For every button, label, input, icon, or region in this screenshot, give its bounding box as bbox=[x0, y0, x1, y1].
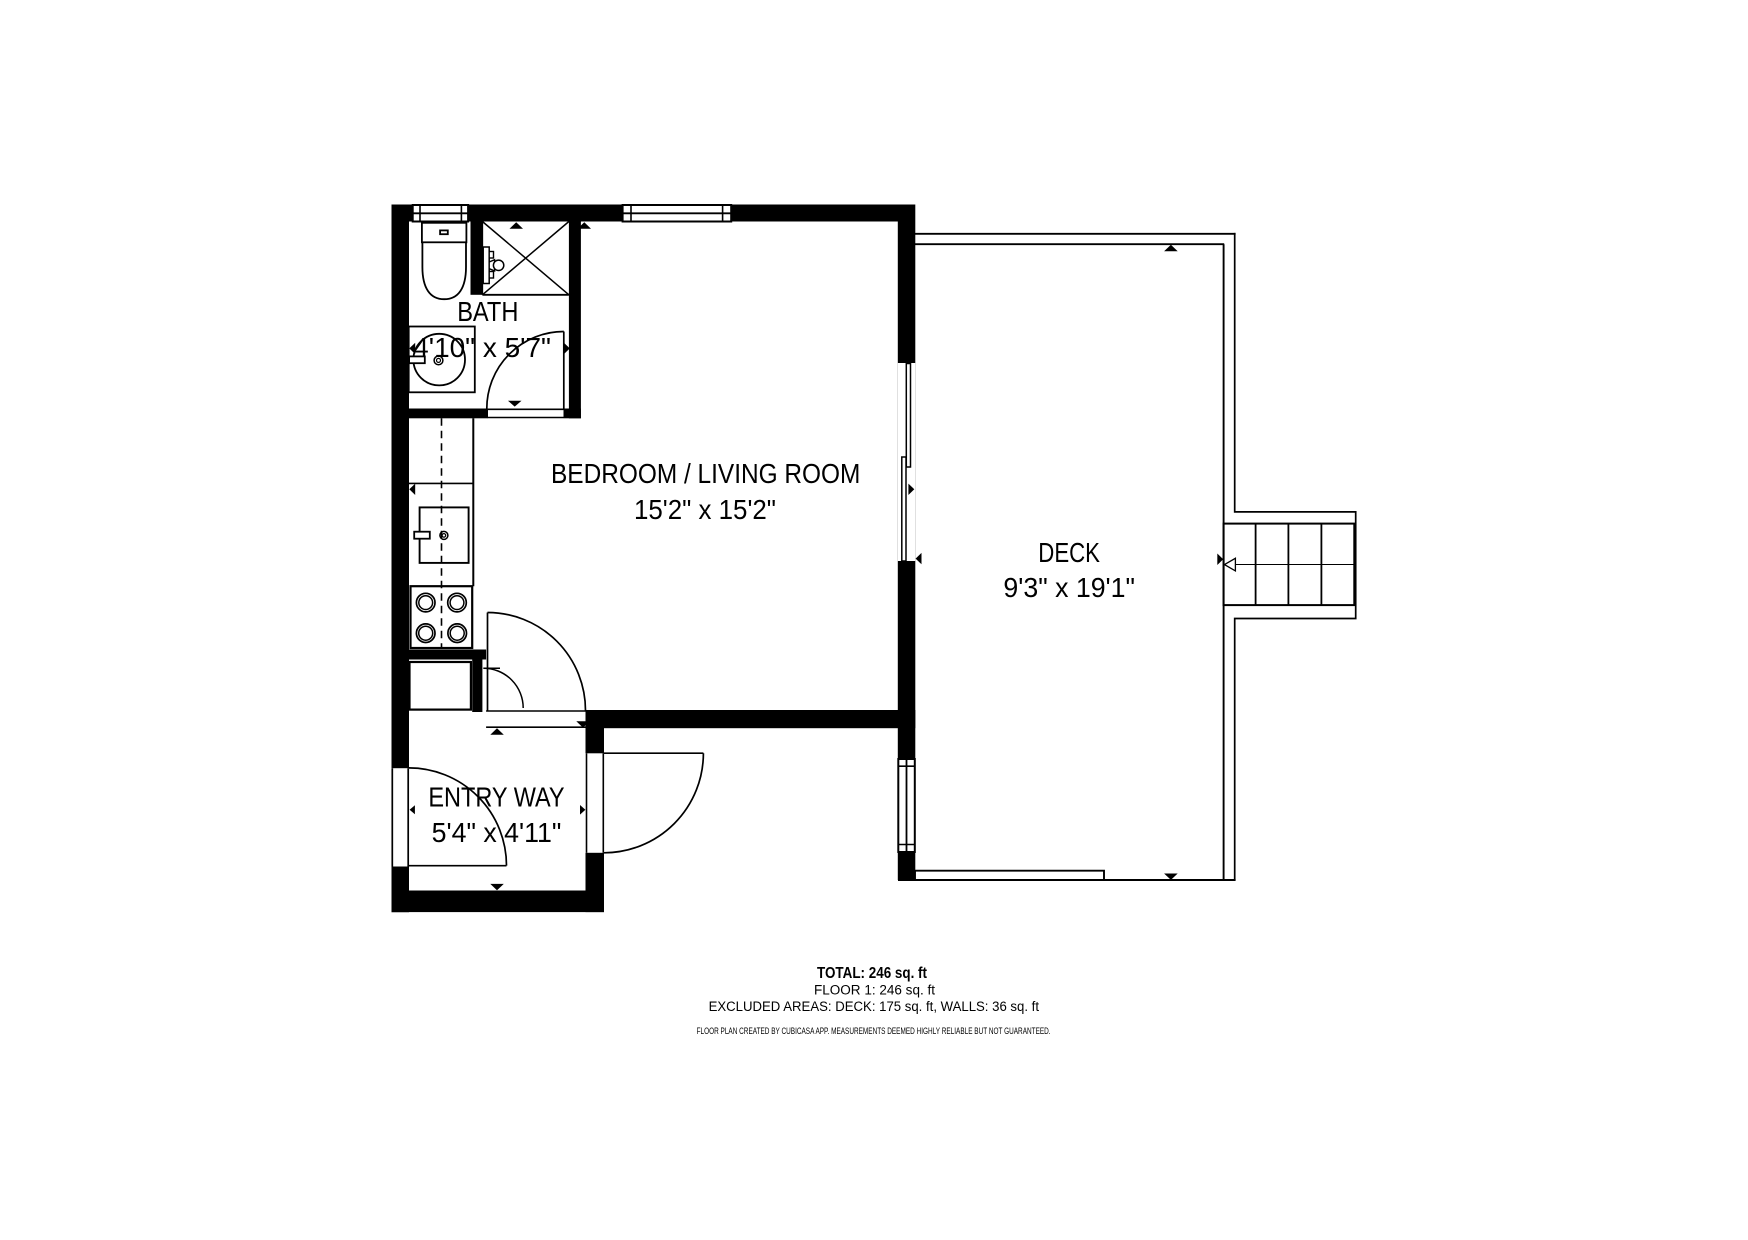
svg-text:EXCLUDED AREAS: DECK: 175 sq.: EXCLUDED AREAS: DECK: 175 sq. ft, WALLS:… bbox=[709, 999, 1039, 1015]
svg-text:4'10" x 5'7": 4'10" x 5'7" bbox=[413, 332, 551, 363]
svg-text:FLOOR 1: 246 sq. ft: FLOOR 1: 246 sq. ft bbox=[814, 982, 935, 998]
svg-text:DECK: DECK bbox=[1038, 537, 1100, 568]
svg-text:9'3" x 19'1": 9'3" x 19'1" bbox=[1003, 572, 1135, 603]
svg-text:FLOOR PLAN CREATED BY CUBICASA: FLOOR PLAN CREATED BY CUBICASA APP. MEAS… bbox=[697, 1026, 1051, 1037]
svg-text:TOTAL: 246 sq. ft: TOTAL: 246 sq. ft bbox=[817, 965, 927, 982]
svg-text:5'4" x 4'11": 5'4" x 4'11" bbox=[432, 817, 562, 848]
svg-text:15'2" x 15'2": 15'2" x 15'2" bbox=[634, 494, 776, 525]
svg-text:BATH: BATH bbox=[457, 296, 518, 327]
svg-text:ENTRY WAY: ENTRY WAY bbox=[428, 782, 564, 813]
svg-text:BEDROOM / LIVING ROOM: BEDROOM / LIVING ROOM bbox=[551, 458, 860, 489]
